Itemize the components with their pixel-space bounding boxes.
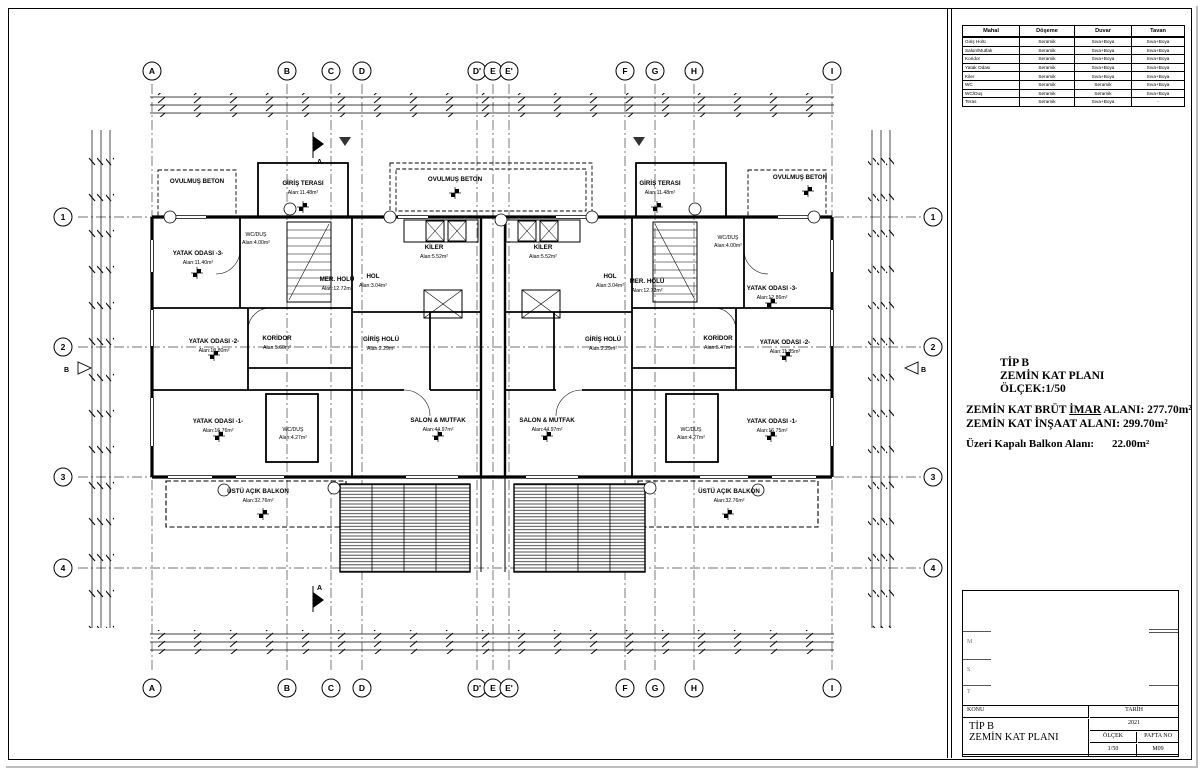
brut-imar-area-line: ZEMİN KAT BRÜT İMAR ALANI: 277.70m²	[966, 404, 1192, 416]
svg-text:WC/DUŞ: WC/DUŞ	[245, 232, 267, 238]
svg-text:Alan:5.52m²: Alan:5.52m²	[420, 254, 448, 260]
sheet-shadow-right	[1196, 6, 1198, 766]
svg-text:F: F	[622, 66, 627, 76]
drawing-sheet: A A B B A B C D D' E E' F G	[0, 0, 1200, 769]
col-header-mahal: Mahal	[963, 26, 1020, 38]
svg-text:G: G	[652, 66, 659, 76]
finishes-header-row: Mahal Döşeme Duvar Tavan	[963, 26, 1185, 38]
svg-text:Alan:2.29m²: Alan:2.29m²	[589, 346, 617, 352]
table-cell: Seramik	[1020, 72, 1075, 81]
table-cell: Salon/Mutfak	[963, 46, 1020, 55]
svg-text:C: C	[328, 683, 334, 693]
brut-prefix: ZEMİN KAT BRÜT	[966, 404, 1069, 416]
svg-text:1: 1	[61, 212, 66, 222]
table-row: Giriş HolüSeramikSıva+BoyaSıva+Boya	[963, 37, 1185, 46]
svg-text:Alan:11.48m²: Alan:11.48m²	[288, 190, 319, 196]
svg-text:Alan:4.00m²: Alan:4.00m²	[242, 240, 270, 246]
svg-text:KİLER: KİLER	[534, 244, 553, 251]
svg-text:E: E	[490, 683, 496, 693]
svg-text:WC/DUŞ: WC/DUŞ	[717, 235, 739, 241]
tarih-label: TARİH	[1090, 706, 1178, 718]
table-cell: Seramik	[1075, 89, 1132, 98]
table-cell: Sıva+Boya	[1075, 63, 1132, 72]
table-cell: Sıva+Boya	[1132, 55, 1185, 64]
svg-text:MER. HOLÜ: MER. HOLÜ	[630, 278, 665, 285]
table-cell: Sıva+Boya	[1132, 37, 1185, 46]
table-cell: Seramik	[1020, 80, 1075, 89]
project-title-cell: TİP B ZEMİN KAT PLANI	[963, 719, 1089, 756]
svg-text:D: D	[359, 66, 365, 76]
svg-text:Alan:3.04m²: Alan:3.04m²	[359, 283, 387, 289]
svg-text:OVULMUŞ BETON: OVULMUŞ BETON	[773, 174, 828, 181]
svg-text:Alan:16.75m²: Alan:16.75m²	[757, 428, 788, 434]
pafta-value: M09	[1138, 744, 1178, 756]
plan-type-title: TİP B	[1000, 357, 1029, 369]
svg-text:Alan:11.40m²: Alan:11.40m²	[183, 260, 214, 266]
plan-name-title: ZEMİN KAT PLANI	[1000, 370, 1104, 382]
olcek-value: 1/50	[1090, 744, 1137, 756]
svg-text:HOL: HOL	[366, 273, 379, 280]
svg-text:GİRİŞ TERASI: GİRİŞ TERASI	[282, 180, 324, 187]
brut-imar-word: İMAR	[1069, 404, 1101, 416]
tarih-value: 2021	[1090, 719, 1178, 731]
svg-text:Alan:11.85m²: Alan:11.85m²	[770, 349, 801, 355]
table-cell: Sıva+Boya	[1132, 89, 1185, 98]
svg-text:Alan:12.72m²: Alan:12.72m²	[632, 288, 663, 294]
terrace-hatch-right	[514, 484, 645, 572]
table-cell: Yatak Odası	[963, 63, 1020, 72]
svg-text:YATAK ODASI -3-: YATAK ODASI -3-	[747, 285, 797, 292]
svg-text:Alan:5.60m²: Alan:5.60m²	[263, 345, 291, 351]
svg-text:I: I	[831, 683, 833, 693]
konu-label: KONU	[963, 706, 1089, 718]
table-cell: Sıva+Boya	[1075, 98, 1132, 107]
svg-text:Alan:4.27m²: Alan:4.27m²	[677, 435, 705, 441]
section-marker-a-top: A	[313, 132, 324, 166]
table-cell: Koridor	[963, 55, 1020, 64]
table-cell: Sıva+Boya	[1075, 37, 1132, 46]
svg-text:Alan:5.52m²: Alan:5.52m²	[529, 254, 557, 260]
project-line1: TİP B	[969, 721, 1088, 732]
svg-text:Alan:4.00m²: Alan:4.00m²	[714, 243, 742, 249]
svg-text:Alan:44.97m²: Alan:44.97m²	[532, 427, 563, 433]
svg-text:YATAK ODASI -2-: YATAK ODASI -2-	[189, 338, 239, 345]
finishes-table: Mahal Döşeme Duvar Tavan Giriş HolüSeram…	[962, 25, 1185, 107]
table-cell: Seramik	[1020, 55, 1075, 64]
insaat-area-line: ZEMİN KAT İNŞAAT ALANI: 299.70m²	[966, 418, 1168, 430]
table-cell: Sıva+Boya	[1075, 72, 1132, 81]
svg-text:F: F	[622, 683, 627, 693]
svg-text:D': D'	[473, 683, 481, 693]
svg-text:2: 2	[61, 342, 66, 352]
grid-bubbles-right: 1 2 3 4	[924, 208, 942, 577]
svg-text:KORİDOR: KORİDOR	[703, 335, 733, 342]
table-row: WC/DuşSeramikSeramikSıva+Boya	[963, 89, 1185, 98]
svg-text:SALON & MUTFAK: SALON & MUTFAK	[410, 417, 466, 424]
svg-text:B: B	[921, 367, 926, 374]
svg-text:SALON & MUTFAK: SALON & MUTFAK	[519, 417, 575, 424]
svg-text:2: 2	[931, 342, 936, 352]
entrance-arrows	[339, 137, 645, 146]
table-cell: WC	[963, 80, 1020, 89]
table-cell: Seramik	[1020, 46, 1075, 55]
svg-text:KİLER: KİLER	[425, 244, 444, 251]
floor-plan-drawing: A A B B A B C D D' E E' F G	[0, 0, 960, 769]
table-cell: Sıva+Boya	[1075, 55, 1132, 64]
title-block: KONU TARİH TİP B ZEMİN KAT PLANI 2021 ÖL…	[962, 705, 1179, 757]
table-cell: Sıva+Boya	[1132, 46, 1185, 55]
terrace-hatch-left	[340, 484, 470, 572]
table-row: KilerSeramikSıva+BoyaSıva+Boya	[963, 72, 1185, 81]
svg-text:4: 4	[61, 563, 66, 573]
svg-text:GİRİŞ TERASI: GİRİŞ TERASI	[639, 180, 681, 187]
svg-text:OVULMUŞ BETON: OVULMUŞ BETON	[428, 176, 483, 183]
table-cell: WC/Duş	[963, 89, 1020, 98]
table-cell: Sıva+Boya	[1132, 80, 1185, 89]
svg-text:E: E	[490, 66, 496, 76]
svg-text:Alan:12.72m²: Alan:12.72m²	[322, 286, 353, 292]
svg-text:A: A	[149, 66, 155, 76]
brut-suffix: ALANI: 277.70m²	[1101, 404, 1192, 416]
col-header-duvar: Duvar	[1075, 26, 1132, 38]
grid-lines	[78, 84, 922, 672]
table-cell: Sıva+Boya	[1075, 46, 1132, 55]
svg-text:B: B	[64, 367, 69, 374]
section-marker-a-bottom: A	[313, 585, 324, 612]
table-row: Salon/MutfakSeramikSıva+BoyaSıva+Boya	[963, 46, 1185, 55]
svg-text:Alan:4.27m²: Alan:4.27m²	[279, 435, 307, 441]
svg-text:Alan:32.76m²: Alan:32.76m²	[243, 498, 274, 504]
col-header-doseme: Döşeme	[1020, 26, 1075, 38]
table-cell: Sıva+Boya	[1132, 63, 1185, 72]
svg-text:MER. HOLÜ: MER. HOLÜ	[320, 276, 355, 283]
table-row: WCSeramikSeramikSıva+Boya	[963, 80, 1185, 89]
table-cell: Giriş Holü	[963, 37, 1020, 46]
olcek-label: ÖLÇEK	[1090, 732, 1137, 743]
balkon-label: Üzeri Kapalı Balkon Alanı:	[966, 438, 1094, 450]
svg-text:Alan:2.29m²: Alan:2.29m²	[367, 346, 395, 352]
svg-text:E': E'	[505, 683, 513, 693]
svg-text:B: B	[284, 66, 290, 76]
svg-text:GİRİŞ HOLÜ: GİRİŞ HOLÜ	[363, 336, 400, 343]
table-cell: Seramik	[1075, 80, 1132, 89]
svg-text:A: A	[317, 585, 322, 592]
table-cell: Seramik	[1020, 89, 1075, 98]
balkon-area-line: Üzeri Kapalı Balkon Alanı:22.00m²	[966, 438, 1149, 450]
svg-text:YATAK ODASI -1-: YATAK ODASI -1-	[193, 418, 243, 425]
svg-text:H: H	[691, 683, 697, 693]
svg-text:YATAK ODASI -1-: YATAK ODASI -1-	[747, 418, 797, 425]
table-cell: Seramik	[1020, 63, 1075, 72]
stamp-letter-s: S	[967, 667, 970, 673]
svg-text:Alan:32.76m²: Alan:32.76m²	[714, 498, 745, 504]
svg-text:G: G	[652, 683, 659, 693]
grid-bubbles-bottom: A B C D D' E E' F G H I	[143, 679, 841, 697]
svg-text:1: 1	[931, 212, 936, 222]
svg-text:ÜSTÜ AÇIK BALKON: ÜSTÜ AÇIK BALKON	[227, 488, 289, 495]
col-header-tavan: Tavan	[1132, 26, 1185, 38]
project-line2: ZEMİN KAT PLANI	[969, 732, 1088, 743]
svg-text:WC/DUŞ: WC/DUŞ	[282, 427, 304, 433]
svg-text:A: A	[317, 159, 322, 166]
svg-text:GİRİŞ HOLÜ: GİRİŞ HOLÜ	[585, 336, 622, 343]
table-cell: Teras	[963, 98, 1020, 107]
svg-text:A: A	[149, 683, 155, 693]
section-marker-b-left: B	[64, 362, 91, 374]
table-row: Yatak OdasıSeramikSıva+BoyaSıva+Boya	[963, 63, 1185, 72]
svg-text:YATAK ODASI -2-: YATAK ODASI -2-	[760, 339, 810, 346]
table-cell: Seramik	[1020, 98, 1075, 107]
svg-text:Alan:12.86m²: Alan:12.86m²	[757, 295, 788, 301]
svg-text:E': E'	[505, 66, 513, 76]
kitchen-fixtures	[404, 220, 580, 318]
svg-text:B: B	[284, 683, 290, 693]
stamp-letter-t: T	[967, 689, 971, 695]
svg-text:3: 3	[931, 472, 936, 482]
svg-text:C: C	[328, 66, 334, 76]
section-marker-b-right: B	[905, 362, 926, 374]
table-row: TerasSeramikSıva+Boya-	[963, 98, 1185, 107]
svg-text:Alan:11.48m²: Alan:11.48m²	[645, 190, 676, 196]
svg-text:Alan:16.76m²: Alan:16.76m²	[203, 428, 234, 434]
grid-bubbles-left: 1 2 3 4	[54, 208, 72, 577]
stamp-letter-m: M	[967, 639, 972, 645]
table-cell: Kiler	[963, 72, 1020, 81]
table-cell: Sıva+Boya	[1132, 72, 1185, 81]
table-cell: Seramik	[1020, 37, 1075, 46]
svg-text:OVULMUŞ BETON: OVULMUŞ BETON	[170, 178, 225, 185]
svg-text:H: H	[691, 66, 697, 76]
pafta-label: PAFTA NO	[1138, 732, 1178, 743]
svg-text:YATAK ODASI -3-: YATAK ODASI -3-	[173, 250, 223, 257]
balkon-value: 22.00m²	[1112, 438, 1149, 450]
svg-text:D': D'	[473, 66, 481, 76]
svg-text:ÜSTÜ AÇIK BALKON: ÜSTÜ AÇIK BALKON	[698, 488, 760, 495]
grid-bubbles-top: A B C D D' E E' F G H I	[143, 62, 841, 80]
svg-text:D: D	[359, 683, 365, 693]
svg-text:Alan:44.97m²: Alan:44.97m²	[423, 427, 454, 433]
svg-text:3: 3	[61, 472, 66, 482]
svg-text:Alan:10.80m²: Alan:10.80m²	[199, 348, 230, 354]
svg-text:4: 4	[931, 563, 936, 573]
svg-text:I: I	[831, 66, 833, 76]
svg-text:WC/DUŞ: WC/DUŞ	[680, 427, 702, 433]
svg-text:Alan:5.47m²: Alan:5.47m²	[704, 345, 732, 351]
svg-text:KORİDOR: KORİDOR	[262, 335, 292, 342]
svg-text:Alan:3.04m²: Alan:3.04m²	[596, 283, 624, 289]
svg-text:HOL: HOL	[603, 273, 616, 280]
table-row: KoridorSeramikSıva+BoyaSıva+Boya	[963, 55, 1185, 64]
plan-scale-title: ÖLÇEK:1/50	[1000, 383, 1066, 395]
table-cell: -	[1132, 98, 1185, 107]
